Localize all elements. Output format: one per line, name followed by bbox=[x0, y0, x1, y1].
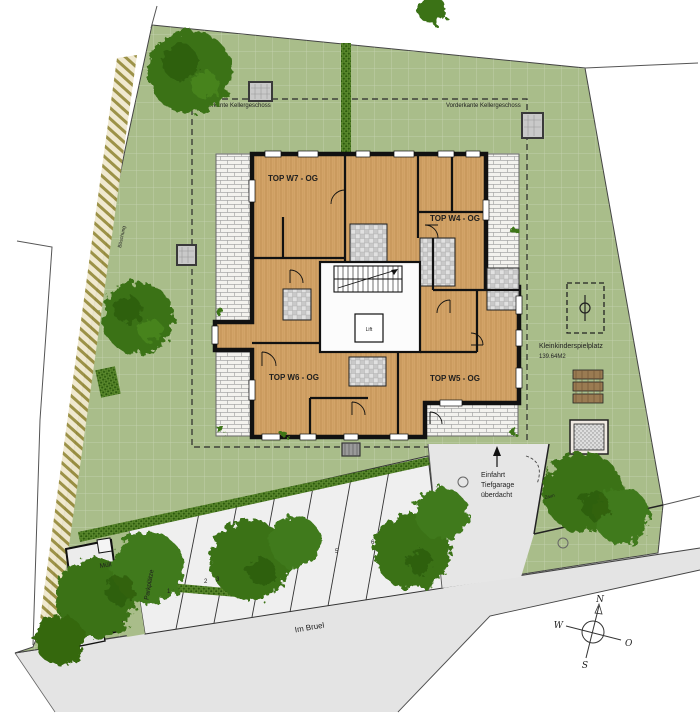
tiled-room bbox=[350, 224, 387, 263]
apartment-label-w5: TOP W5 - OG bbox=[430, 374, 480, 383]
building: Lift TOP W7 - OG TOP W4 - OG TOP W6 - OG… bbox=[212, 151, 522, 440]
playground-name: Kleinkinderspielplatz bbox=[539, 343, 603, 350]
tiled-room bbox=[349, 357, 386, 386]
playground-area: 139.64M2 bbox=[539, 354, 566, 360]
grate bbox=[342, 443, 360, 456]
balcony-top-left bbox=[216, 154, 251, 321]
balcony-top-right bbox=[487, 154, 519, 286]
boundary-right bbox=[663, 496, 700, 505]
lift-label: Lift bbox=[366, 327, 373, 333]
compass-w: W bbox=[554, 621, 564, 631]
compass-o: O bbox=[625, 639, 633, 649]
tree bbox=[102, 282, 174, 354]
compass-rose: N W O S bbox=[554, 595, 633, 671]
skylight bbox=[177, 245, 196, 265]
apartment-label-w7: TOP W7 - OG bbox=[268, 174, 318, 183]
tiled-room bbox=[283, 289, 311, 320]
skylight bbox=[522, 113, 543, 138]
garage-line3: überdacht bbox=[481, 492, 512, 499]
basement-label-right: Vorderkante Kellergeschoss bbox=[446, 103, 521, 109]
garage-line2: Tiefgarage bbox=[481, 482, 514, 489]
apartment-label-w6: TOP W6 - OG bbox=[269, 373, 319, 382]
skylight bbox=[249, 82, 272, 101]
balcony-bottom-left bbox=[216, 351, 251, 436]
terrace-bottom-right bbox=[426, 404, 518, 436]
boundary-top-right bbox=[585, 63, 698, 68]
tree bbox=[418, 0, 446, 24]
site-plan: Böschung Vorderkante Kellergeschoss Vord… bbox=[0, 0, 700, 722]
benches bbox=[573, 370, 603, 403]
waste-box bbox=[97, 538, 112, 553]
garage-line1: Einfahrt bbox=[481, 472, 505, 479]
sandbox bbox=[570, 420, 608, 454]
site-plan-canvas: Böschung Vorderkante Kellergeschoss Vord… bbox=[0, 0, 700, 722]
stair-core: Lift bbox=[320, 262, 420, 352]
compass-s: S bbox=[582, 661, 588, 671]
tiled-room bbox=[420, 238, 455, 286]
hedge-top-divider bbox=[341, 43, 351, 153]
compass-n: N bbox=[595, 595, 605, 605]
tree bbox=[148, 30, 232, 114]
apartment-label-w4: TOP W4 - OG bbox=[430, 214, 480, 223]
